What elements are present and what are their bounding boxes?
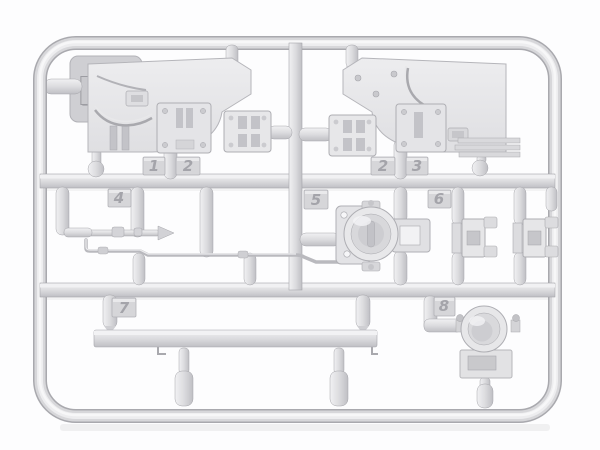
runner-center-vertical — [289, 43, 302, 290]
part-thin-strips — [455, 138, 520, 157]
svg-text:2: 2 — [378, 157, 388, 175]
part-rod-short — [64, 226, 174, 240]
part-number-tag-4: 4 — [108, 189, 131, 207]
part-number-tag-6: 6 — [428, 190, 451, 208]
part-number-tag-8: 8 — [434, 297, 455, 316]
svg-text:4: 4 — [113, 189, 124, 207]
part-hinge-plate-left — [224, 111, 292, 152]
svg-text:8: 8 — [439, 297, 449, 315]
part-ring-mount — [336, 200, 430, 271]
svg-text:7: 7 — [119, 299, 130, 317]
sprue-gate-capsule — [44, 79, 82, 94]
part-bracket-a — [452, 217, 497, 257]
part-number-tag-2-left: 2 — [176, 157, 200, 175]
part-number-tag-2-right: 2 — [371, 157, 395, 175]
svg-text:1: 1 — [149, 157, 159, 175]
sprue-illustration: Dv Dv — [0, 0, 600, 450]
model-kit-sprue-image: Dv Dv — [0, 0, 600, 450]
part-number-tag-1-left: 1 — [143, 157, 165, 175]
mount-square-right — [396, 104, 446, 152]
part-number-tag-7: 7 — [112, 298, 136, 317]
part-number-tag-3-right: 3 — [406, 157, 428, 175]
part-hinge-plate-right — [299, 115, 376, 156]
mount-square-left — [157, 103, 211, 153]
svg-text:3: 3 — [412, 157, 422, 175]
svg-text:6: 6 — [434, 190, 444, 208]
part-drum-mount — [456, 306, 520, 378]
part-number-tag-5: 5 — [304, 190, 328, 209]
svg-text:2: 2 — [183, 157, 193, 175]
svg-text:5: 5 — [311, 191, 321, 209]
